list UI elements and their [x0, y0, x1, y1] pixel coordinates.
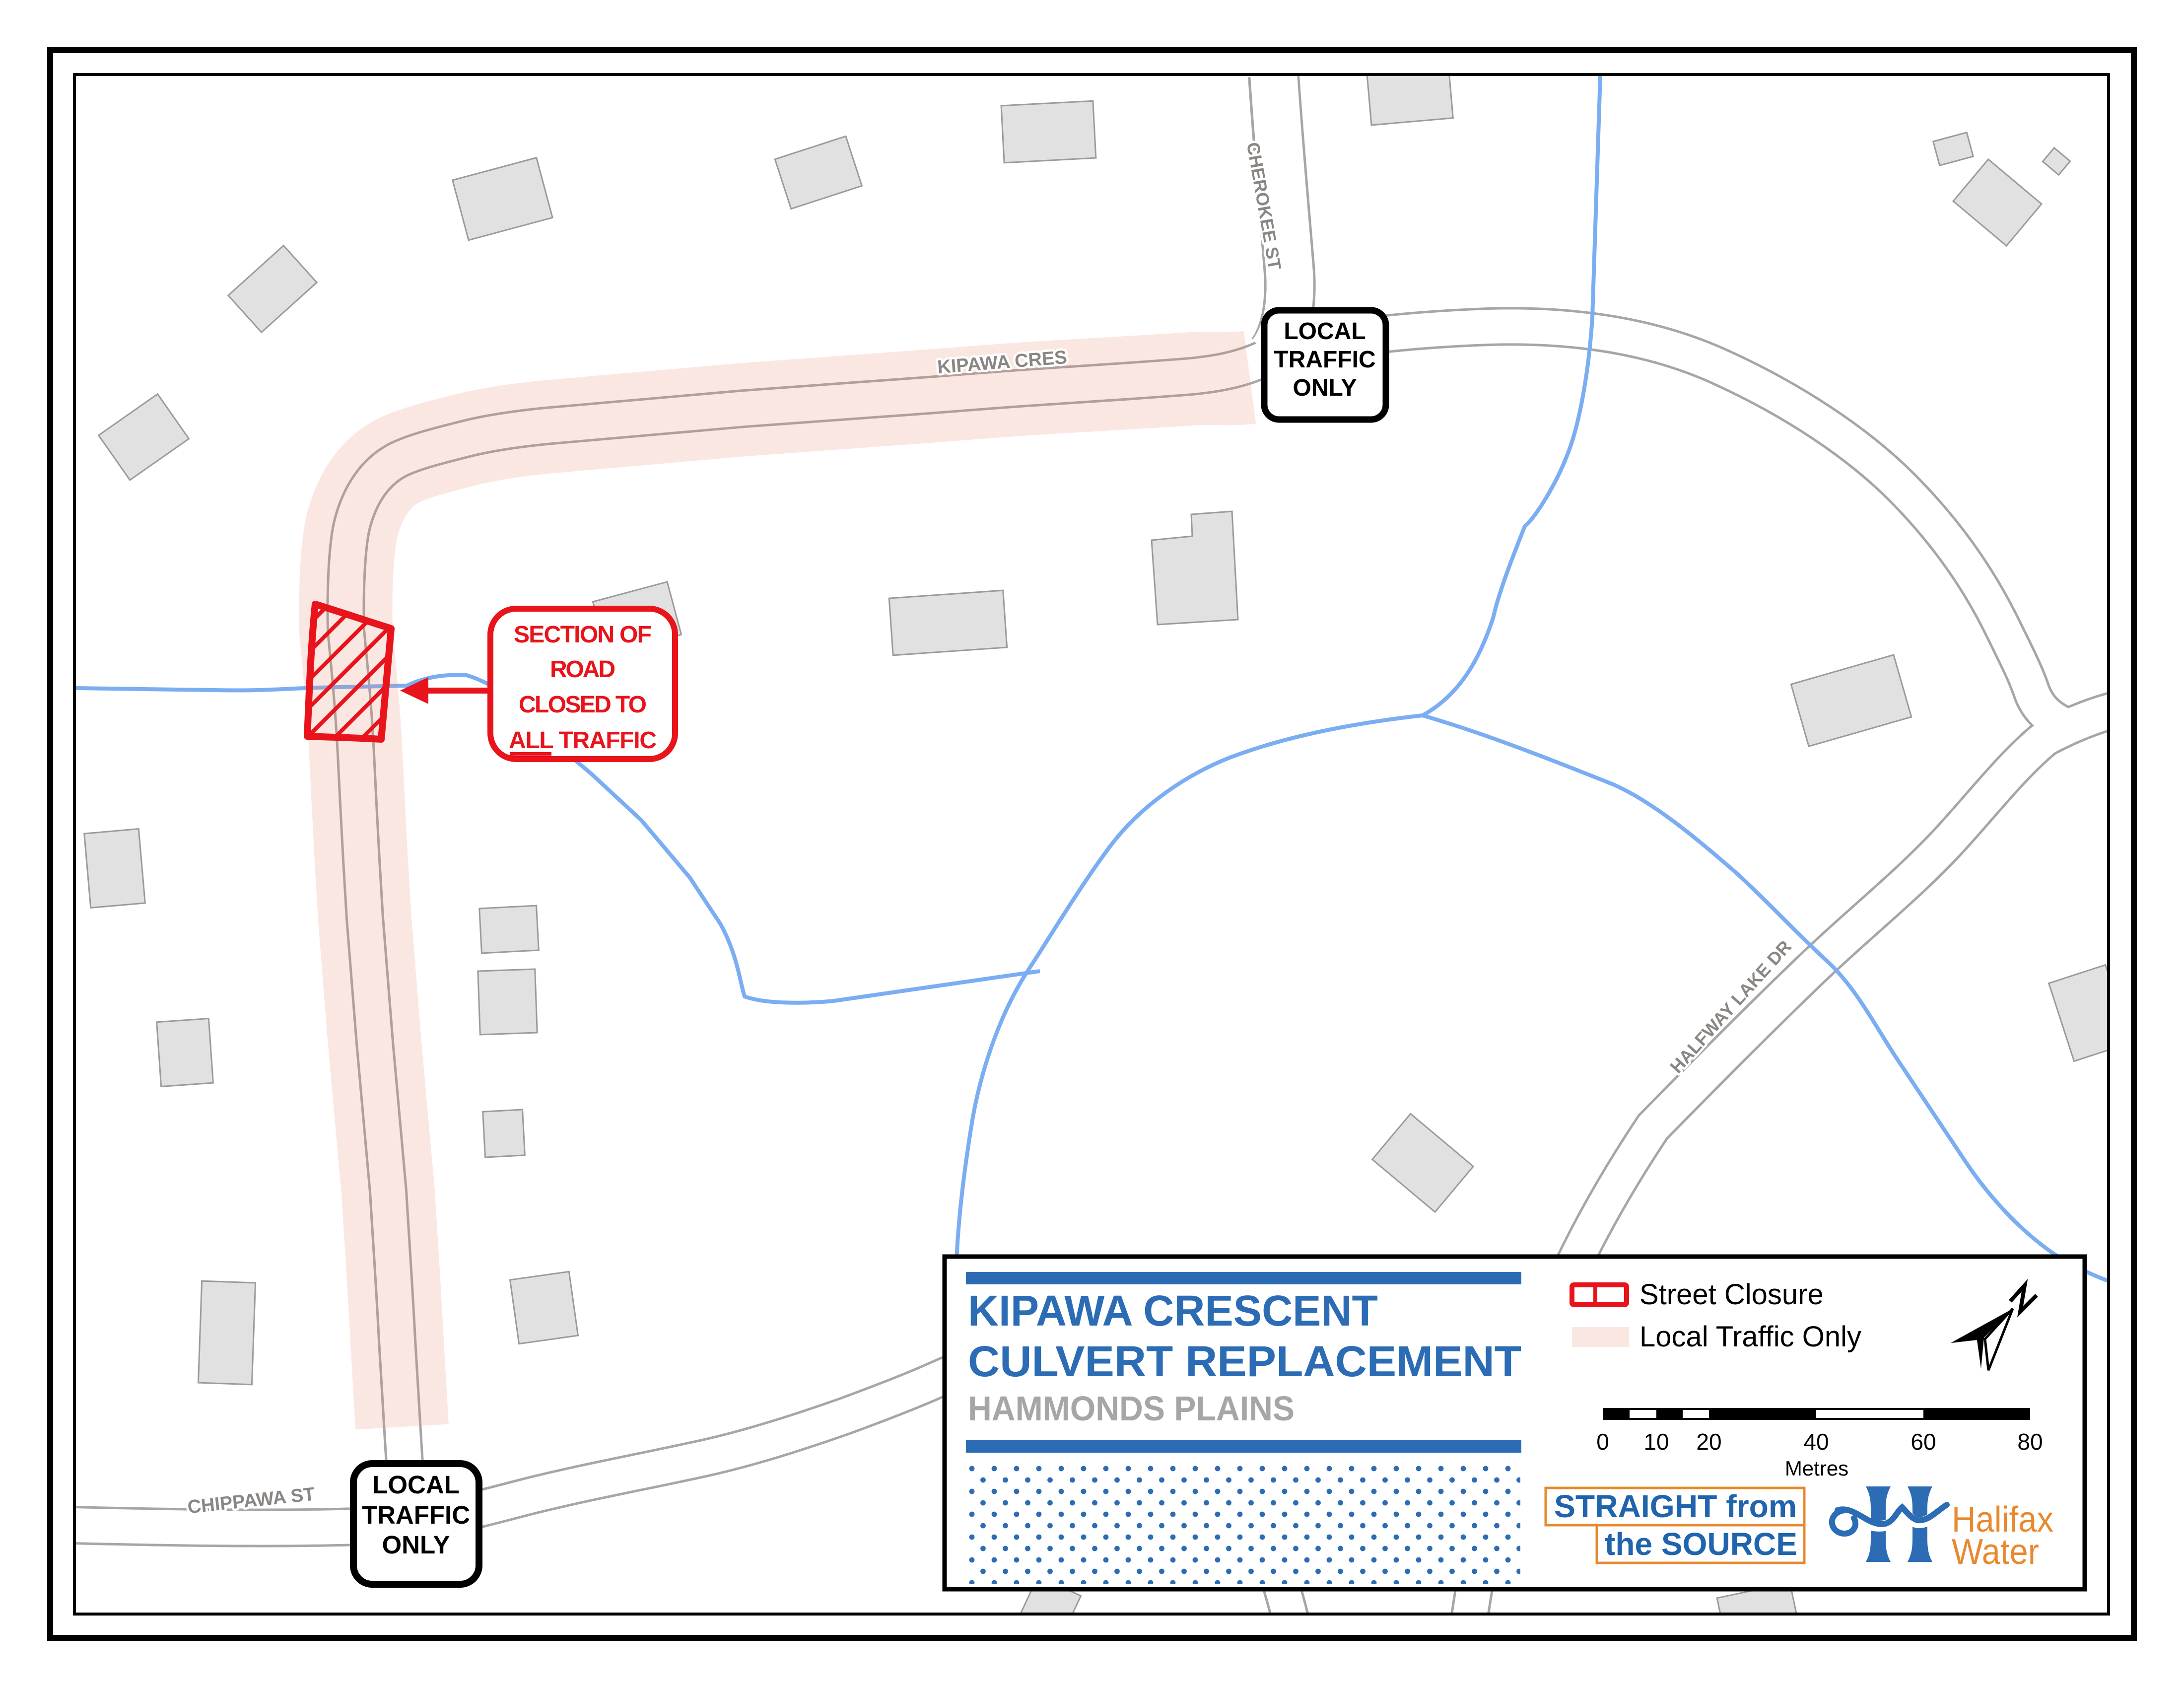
svg-text:Street Closure: Street Closure [1639, 1278, 1824, 1311]
svg-text:Local Traffic Only: Local Traffic Only [1639, 1321, 1861, 1353]
svg-text:TRAFFIC: TRAFFIC [1274, 347, 1375, 373]
svg-text:TRAFFIC: TRAFFIC [362, 1501, 470, 1529]
svg-text:CULVERT REPLACEMENT: CULVERT REPLACEMENT [968, 1337, 1521, 1386]
svg-text:ROAD: ROAD [550, 656, 615, 683]
svg-text:ONLY: ONLY [1293, 375, 1357, 401]
svg-text:ONLY: ONLY [382, 1531, 450, 1559]
svg-text:80: 80 [2017, 1429, 2043, 1455]
svg-text:SECTION OF: SECTION OF [514, 622, 652, 648]
svg-text:HAMMONDS PLAINS: HAMMONDS PLAINS [968, 1389, 1295, 1428]
svg-text:LOCAL: LOCAL [372, 1471, 460, 1499]
svg-text:ALL TRAFFIC: ALL TRAFFIC [509, 727, 657, 754]
svg-text:60: 60 [1911, 1429, 1936, 1455]
svg-text:the SOURCE: the SOURCE [1605, 1526, 1797, 1562]
svg-text:0: 0 [1596, 1429, 1609, 1455]
svg-text:Water: Water [1952, 1532, 2039, 1572]
svg-text:CLOSED TO: CLOSED TO [519, 692, 647, 718]
svg-text:Metres: Metres [1785, 1457, 1848, 1480]
svg-text:20: 20 [1696, 1429, 1721, 1455]
svg-text:40: 40 [1803, 1429, 1829, 1455]
svg-text:KIPAWA CRESCENT: KIPAWA CRESCENT [968, 1287, 1378, 1335]
svg-text:LOCAL: LOCAL [1284, 318, 1365, 345]
svg-text:STRAIGHT from: STRAIGHT from [1554, 1488, 1797, 1524]
svg-text:10: 10 [1643, 1429, 1669, 1455]
